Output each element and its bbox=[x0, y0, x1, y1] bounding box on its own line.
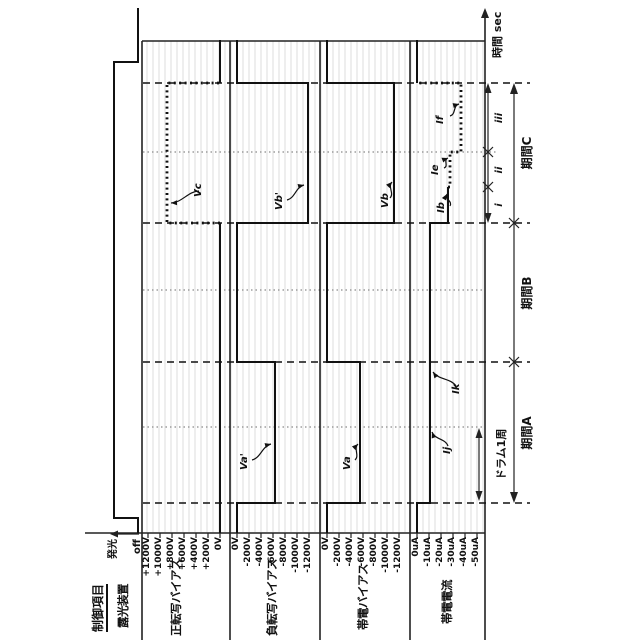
annotation-ik: Ik bbox=[452, 384, 463, 394]
scale-label: -1000V bbox=[382, 537, 391, 620]
leader-arrowhead bbox=[442, 194, 447, 200]
scale-label: -400V bbox=[256, 537, 265, 620]
leader-arrowhead bbox=[433, 372, 438, 378]
rotated-landscape-chart: 制御項目 露光装置 正転写バイアス 負転写バイアス 帯電バイアス 帯電電流 発光… bbox=[0, 0, 640, 640]
scale-label: -800V bbox=[280, 537, 289, 620]
annotation-vc: Vc bbox=[194, 183, 205, 197]
leader-arrowhead bbox=[171, 200, 177, 205]
annotation-va-prime: Va' bbox=[240, 453, 251, 470]
waveform-charge-bias bbox=[327, 40, 394, 533]
scale-label: 0V bbox=[215, 537, 224, 620]
scale-label: -1200V bbox=[394, 537, 403, 620]
scale-label: -20uA bbox=[436, 537, 445, 620]
scale-label: -50uA bbox=[472, 537, 481, 620]
period-b-label: 期間B bbox=[521, 271, 534, 315]
scale-label: -10uA bbox=[424, 537, 433, 620]
scale-label: +600V bbox=[179, 537, 188, 620]
waveform-layer bbox=[114, 8, 461, 533]
annotation-ij: Ij bbox=[443, 447, 454, 454]
scale-label: +1200V bbox=[143, 537, 152, 620]
scale-label: +800V bbox=[167, 537, 176, 620]
period-a-label: 期間A bbox=[521, 411, 534, 455]
scale-label: -400V bbox=[346, 537, 355, 620]
scale-label: +400V bbox=[191, 537, 200, 620]
scale-label: -30uA bbox=[448, 537, 457, 620]
arrowhead bbox=[510, 83, 518, 94]
annotation-ib: Ib bbox=[437, 202, 448, 213]
leader-arrowhead bbox=[432, 432, 437, 438]
annotation-if: If bbox=[436, 116, 447, 124]
timing-diagram-figure: 制御項目 露光装置 正転写バイアス 負転写バイアス 帯電バイアス 帯電電流 発光… bbox=[0, 0, 640, 640]
subperiod-ii-label: ii bbox=[495, 160, 506, 180]
scale-label: 発光 bbox=[109, 539, 120, 600]
emission-arrowhead bbox=[110, 531, 118, 538]
scale-label: 0V bbox=[232, 537, 241, 620]
scale-label: -1000V bbox=[292, 537, 301, 620]
scale-label: -40uA bbox=[460, 537, 469, 620]
arrowhead bbox=[510, 492, 518, 503]
control-item-header: 制御項目 bbox=[92, 584, 108, 632]
annotation-vb: Vb bbox=[381, 193, 392, 208]
scale-label: -800V bbox=[370, 537, 379, 620]
scale-label: -600V bbox=[268, 537, 277, 620]
leader-squiggle bbox=[432, 432, 448, 446]
scale-label: +1000V bbox=[155, 537, 164, 620]
diagram-canvas bbox=[0, 0, 640, 640]
subperiod-i-label: i bbox=[495, 195, 506, 215]
time-axis-arrowhead bbox=[481, 8, 489, 18]
drum-revolution-label: ドラム1周 bbox=[496, 429, 508, 480]
waveform-exposure bbox=[114, 8, 138, 533]
waveform-charge-current-main bbox=[417, 187, 448, 533]
scale-label: 0V bbox=[322, 537, 331, 620]
scale-label: 0uA bbox=[412, 537, 421, 620]
gridlines bbox=[147, 41, 483, 532]
leader-squiggle bbox=[287, 185, 304, 200]
period-c-label: 期間C bbox=[521, 131, 534, 175]
time-axis-label: 時間 sec bbox=[492, 12, 504, 58]
subperiod-iii-label: iii bbox=[495, 108, 506, 128]
scale-label: -1200V bbox=[304, 537, 313, 620]
scale-label: +200V bbox=[203, 537, 212, 620]
scale-label: -200V bbox=[334, 537, 343, 620]
annotation-va: Va bbox=[343, 456, 354, 470]
scale-label: -600V bbox=[358, 537, 367, 620]
annotation-vb-prime: Vb' bbox=[275, 192, 286, 210]
scale-label: -200V bbox=[244, 537, 253, 620]
annotation-ie: Ie bbox=[431, 164, 442, 175]
